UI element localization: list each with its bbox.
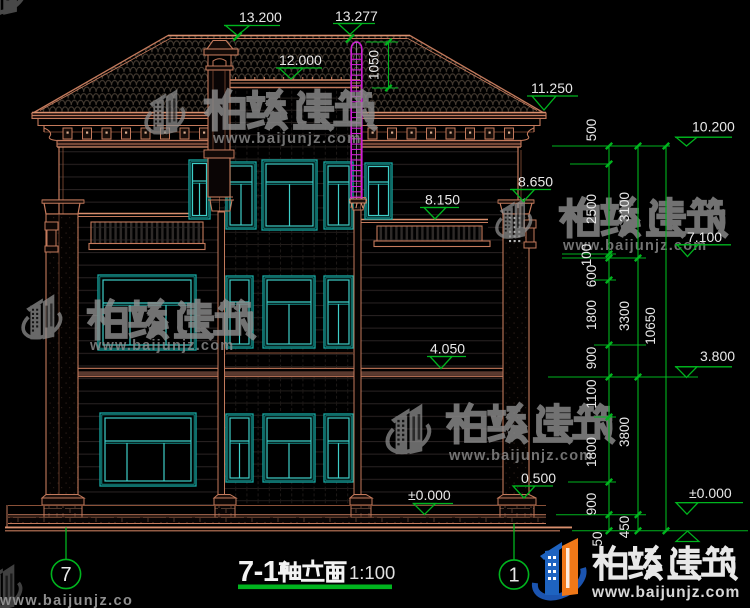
svg-text:7: 7 [60,564,71,586]
svg-text:900: 900 [584,493,599,516]
svg-text:450: 450 [617,516,632,539]
svg-text:www.baijunjz.com: www.baijunjz.com [591,584,740,601]
svg-text:11.250: 11.250 [531,80,573,96]
svg-text:900: 900 [584,347,599,370]
svg-text:1: 1 [508,565,519,587]
svg-text:±0.000: ±0.000 [408,487,451,503]
svg-text:10.200: 10.200 [692,119,735,135]
svg-text:www.baijunjz.com: www.baijunjz.com [212,130,362,147]
svg-text:13.277: 13.277 [335,8,378,24]
svg-text:3.800: 3.800 [700,348,735,364]
svg-text:1800: 1800 [584,300,599,330]
svg-text:8.650: 8.650 [518,174,553,190]
svg-text:1050: 1050 [367,50,382,80]
svg-text:www.baijunjz.com: www.baijunjz.com [448,448,593,464]
svg-text:2500: 2500 [584,194,599,224]
svg-text:8.150: 8.150 [425,192,460,208]
svg-text:±0.000: ±0.000 [689,485,732,501]
svg-text:www.baijunjz.com: www.baijunjz.com [89,338,234,354]
svg-text:0.500: 0.500 [521,470,556,486]
svg-text:3300: 3300 [617,301,632,331]
svg-text:1:100: 1:100 [349,562,395,583]
svg-text:1100: 1100 [584,379,599,408]
svg-text:500: 500 [584,119,599,142]
svg-text:www.baijunjz.co: www.baijunjz.co [0,593,133,608]
svg-text:7-1: 7-1 [238,556,279,588]
svg-text:3100: 3100 [617,192,632,222]
svg-text:4.050: 4.050 [430,341,465,357]
svg-text:10650: 10650 [643,307,658,345]
svg-text:100: 100 [579,244,594,267]
svg-text:50: 50 [590,531,605,546]
svg-text:3800: 3800 [617,417,632,447]
svg-text:12.000: 12.000 [279,52,322,68]
svg-text:7.100: 7.100 [687,229,722,245]
svg-text:13.200: 13.200 [239,9,282,25]
svg-text:600: 600 [584,265,599,288]
svg-text:1800: 1800 [584,437,599,467]
